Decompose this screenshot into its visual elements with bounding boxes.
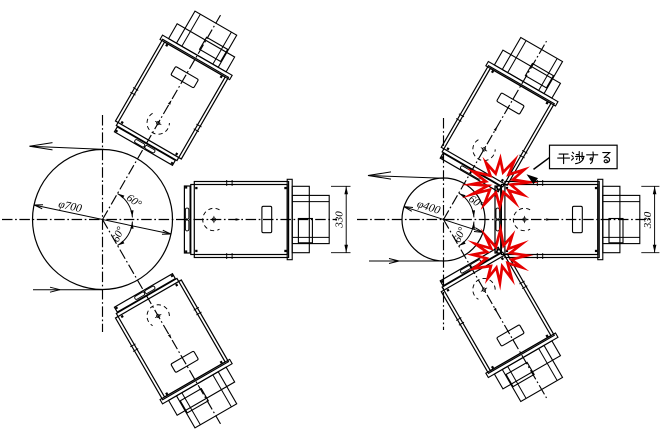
svg-text:330: 330 [642,211,654,229]
svg-text:330: 330 [334,211,346,229]
